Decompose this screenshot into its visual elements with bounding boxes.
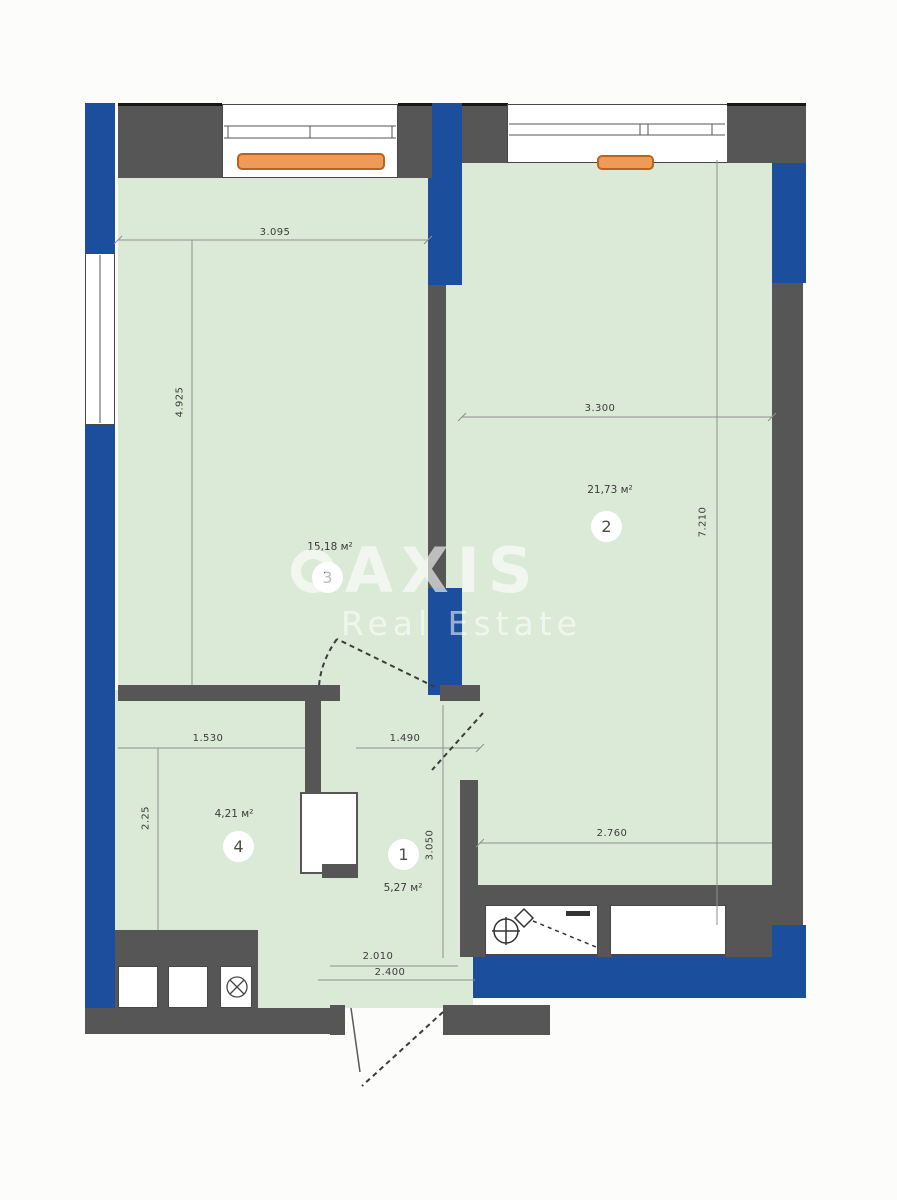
watermark: AXIS Real Estate — [291, 540, 582, 643]
radiator — [237, 153, 385, 170]
room-1-number-badge: 1 — [388, 839, 419, 870]
watermark-logo-icon — [291, 549, 335, 593]
wall-segment — [428, 103, 462, 285]
dim-room2-height: 7.210 — [698, 507, 709, 538]
shaft-bay — [118, 966, 158, 1008]
floor-plan-page: 3.095 4.925 3.300 7.210 2.760 1.530 1.49… — [0, 0, 897, 1200]
vent-shaft-bay — [220, 966, 252, 1008]
wall-segment — [727, 103, 806, 163]
left-window — [85, 253, 115, 425]
dim-room2-width: 3.300 — [585, 403, 616, 414]
wall-segment — [85, 1008, 345, 1034]
room-2-number-badge: 2 — [591, 511, 622, 542]
room-4-door-niche — [300, 792, 358, 874]
service-bay — [610, 905, 726, 955]
wall-segment — [460, 905, 485, 957]
radiator — [597, 155, 654, 170]
room-1-area-label: 5,27 м² — [384, 882, 423, 894]
wall-segment — [460, 885, 780, 907]
wall-segment — [460, 780, 478, 887]
wall-segment — [440, 685, 480, 701]
wall-segment — [85, 103, 115, 253]
wall-segment — [85, 425, 115, 690]
wall-segment — [443, 1005, 550, 1035]
wall-segment — [726, 905, 772, 957]
dim-entrance-width: 2.010 — [363, 951, 394, 962]
dim-hall-height: 3.050 — [425, 830, 436, 861]
wall-segment — [118, 103, 222, 178]
wall-segment — [85, 690, 115, 1008]
dim-room3-height: 4.925 — [175, 387, 186, 418]
water-heater-bay — [485, 905, 598, 955]
wall-segment — [772, 283, 803, 925]
room-4-area-label: 4,21 м² — [215, 808, 254, 820]
watermark-brand: AXIS — [345, 540, 541, 602]
dim-room3-width: 3.095 — [260, 227, 291, 238]
dim-hall-width: 1.490 — [390, 733, 421, 744]
shaft-bay — [168, 966, 208, 1008]
dim-room4-width: 1.530 — [193, 733, 224, 744]
wall-segment — [305, 690, 321, 792]
watermark-tagline: Real Estate — [341, 604, 582, 643]
entry-door-jamb — [330, 1005, 345, 1035]
dim-entrance-outer-width: 2.400 — [375, 967, 406, 978]
dim-room2-lower-width: 2.760 — [597, 828, 628, 839]
entry-door-leaf — [351, 1008, 360, 1072]
wall-segment — [398, 103, 432, 178]
room-4-number-badge: 4 — [223, 831, 254, 862]
wall-segment — [322, 864, 358, 878]
room-2-area-label: 21,73 м² — [587, 484, 633, 496]
wall-segment — [473, 955, 806, 998]
wall-segment — [462, 103, 508, 163]
dim-room4-height: 2.25 — [141, 806, 152, 830]
